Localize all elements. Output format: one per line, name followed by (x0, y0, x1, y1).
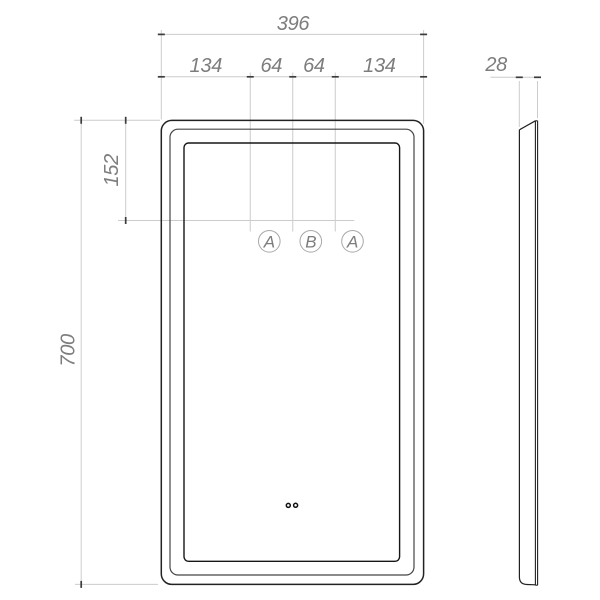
svg-text:B: B (305, 233, 316, 252)
svg-text:A: A (263, 233, 275, 252)
svg-text:134: 134 (363, 55, 396, 77)
svg-text:64: 64 (303, 55, 325, 77)
svg-text:28: 28 (484, 54, 507, 76)
svg-text:396: 396 (277, 13, 311, 35)
svg-text:700: 700 (58, 334, 80, 367)
svg-text:A: A (346, 233, 358, 252)
svg-text:134: 134 (190, 55, 223, 77)
svg-text:64: 64 (260, 55, 282, 77)
svg-text:152: 152 (101, 154, 123, 187)
